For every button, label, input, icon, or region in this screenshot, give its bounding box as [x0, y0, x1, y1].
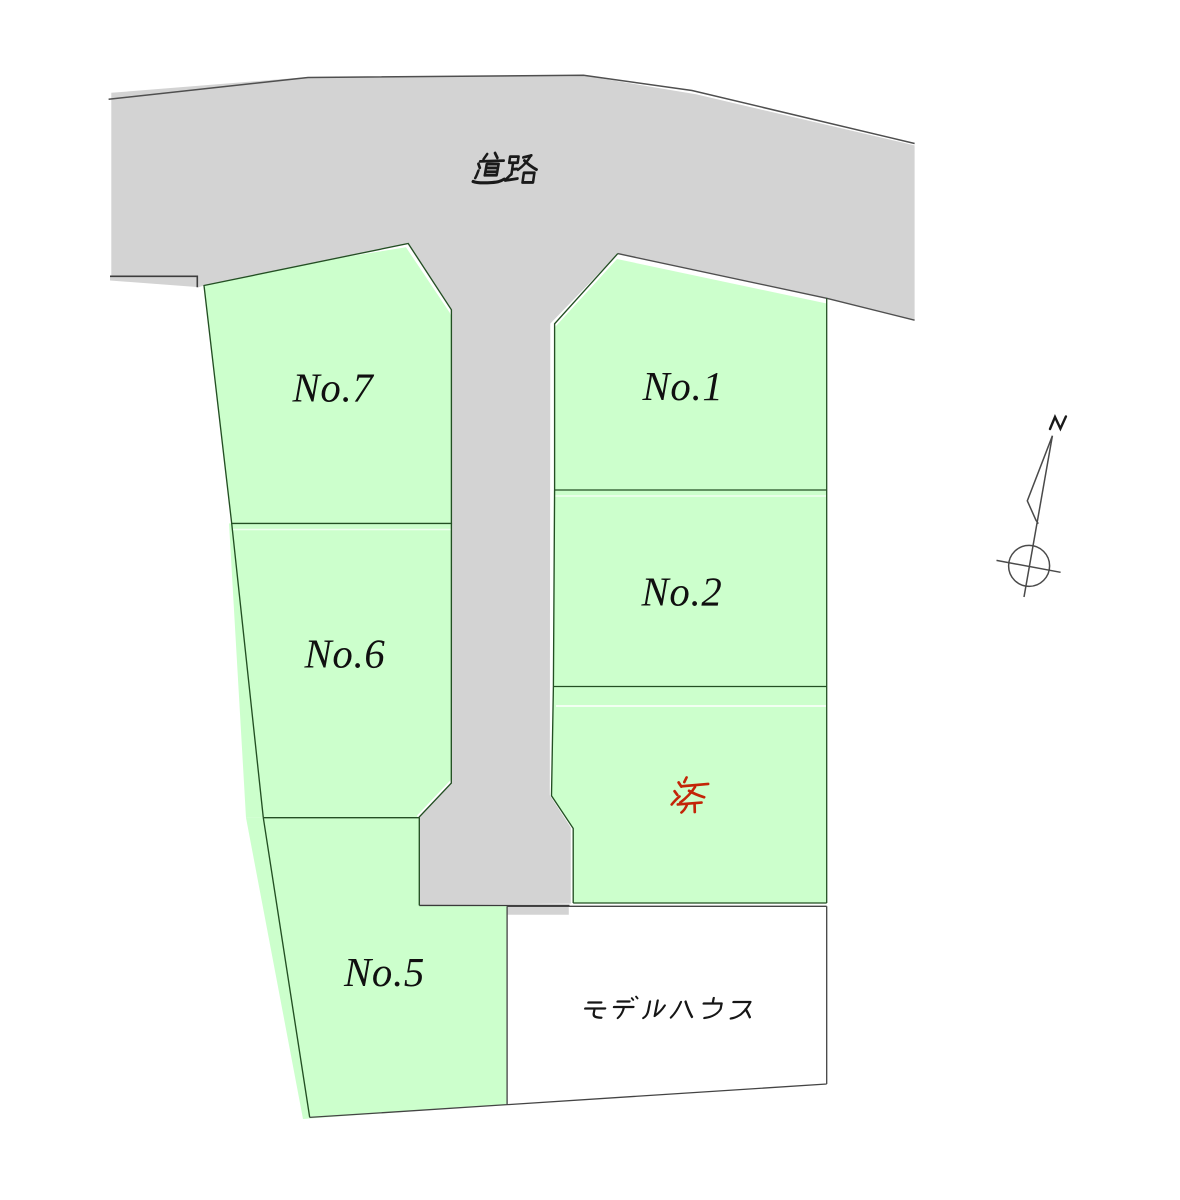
svg-text:No.6: No.6	[303, 632, 385, 677]
svg-text:No.7: No.7	[291, 366, 374, 411]
svg-text:No.2: No.2	[640, 570, 722, 615]
svg-text:No.5: No.5	[343, 950, 425, 995]
svg-text:No.1: No.1	[641, 364, 723, 409]
